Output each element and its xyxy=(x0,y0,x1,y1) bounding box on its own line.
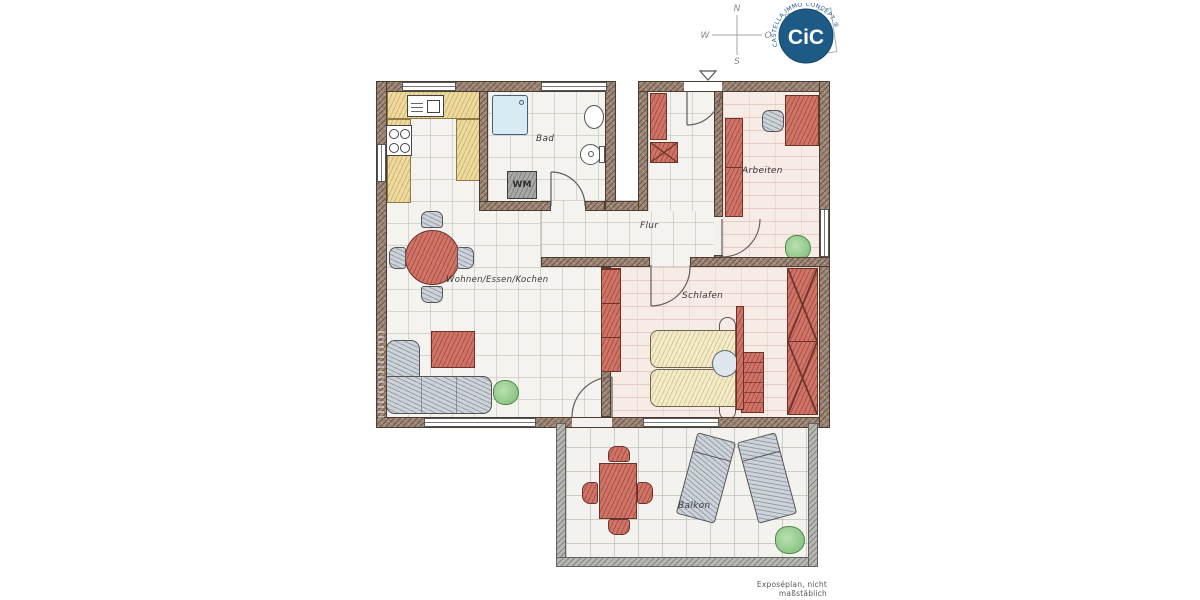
balcony-chair-left xyxy=(582,482,598,504)
window-living-bottom xyxy=(424,418,536,427)
balcony-chair-bottom xyxy=(608,519,630,535)
window-office-right xyxy=(820,209,829,257)
wardrobe-lower xyxy=(787,341,818,415)
wall-bath-bottom-right xyxy=(585,201,605,211)
entrance-opening xyxy=(684,82,722,91)
wardrobe-upper xyxy=(787,268,818,342)
wall-top-right xyxy=(638,81,830,92)
balcony-wall-bottom xyxy=(556,557,818,567)
pillow xyxy=(712,350,738,377)
toilet-icon xyxy=(580,144,601,165)
window-bedroom-bottom xyxy=(643,418,719,427)
wall-corridor-left xyxy=(638,81,648,211)
balcony-chair-right xyxy=(637,482,653,504)
kitchen-counter-mid xyxy=(456,119,480,181)
window-bath-top xyxy=(541,82,607,91)
room-label-bath: Bad xyxy=(536,134,554,144)
company-logo: CASTELLA IMMO CONCEPT ® CiC xyxy=(770,3,850,67)
compass-west: W xyxy=(701,31,711,41)
window-kitchen-top xyxy=(402,82,456,91)
bath-sink-icon xyxy=(584,105,604,129)
bed-headboard-partition xyxy=(736,306,744,410)
dining-chair-top xyxy=(421,211,443,228)
plant-icon-living xyxy=(493,380,519,405)
dresser xyxy=(741,352,764,413)
wall-corridor-right-upper xyxy=(714,91,723,217)
floor-plan-page: WM xyxy=(0,0,1200,600)
desk xyxy=(785,95,819,146)
office-door-opening xyxy=(714,217,723,255)
bedside-arc-top xyxy=(719,317,736,330)
stove-icon xyxy=(386,125,412,156)
room-label-office: Arbeiten xyxy=(742,166,783,176)
dining-chair-bottom xyxy=(421,286,443,303)
office-shelf xyxy=(725,118,743,217)
closet-crossed-box xyxy=(650,142,678,163)
logo-monogram: CiC xyxy=(788,26,824,49)
coffee-table xyxy=(431,331,475,368)
wall-bath-bottom-left xyxy=(479,201,551,211)
balcony-door-opening xyxy=(572,418,612,427)
wall-hall-bottom xyxy=(541,257,650,267)
footer-note: Exposéplan, nicht maßstäblich xyxy=(721,580,827,598)
wall-bath-right xyxy=(605,81,616,211)
wall-bath-left xyxy=(479,91,488,203)
compass-south: S xyxy=(734,57,740,67)
coat-closet xyxy=(650,93,667,140)
shower-icon xyxy=(492,95,528,135)
washer-label: WM xyxy=(508,172,536,198)
room-label-bedroom: Schlafen xyxy=(682,291,723,301)
room-label-balcony: Balkon xyxy=(678,501,710,511)
bedroom-wall-cabinets xyxy=(601,268,621,372)
plant-icon-balcony xyxy=(775,526,805,554)
sofa-seat xyxy=(386,376,492,414)
window-kitchen-left xyxy=(377,144,386,182)
balcony-chair-top xyxy=(608,446,630,462)
kitchen-sink-icon xyxy=(407,95,444,117)
desk-chair xyxy=(762,110,784,132)
dining-chair-left xyxy=(389,247,406,269)
room-label-hall: Flur xyxy=(640,221,658,231)
room-label-living: Wohnen/Essen/Kochen xyxy=(446,275,548,285)
compass-north: N xyxy=(734,4,741,14)
dining-chair-right xyxy=(457,247,474,269)
entrance-marker-icon xyxy=(700,71,716,80)
wall-watermark-strip xyxy=(378,330,384,418)
wall-bedroom-top xyxy=(690,257,830,267)
balcony-table xyxy=(599,463,637,519)
washing-machine-icon: WM xyxy=(507,171,537,199)
balcony-wall-left xyxy=(556,423,566,567)
balcony-wall-right xyxy=(808,423,818,567)
